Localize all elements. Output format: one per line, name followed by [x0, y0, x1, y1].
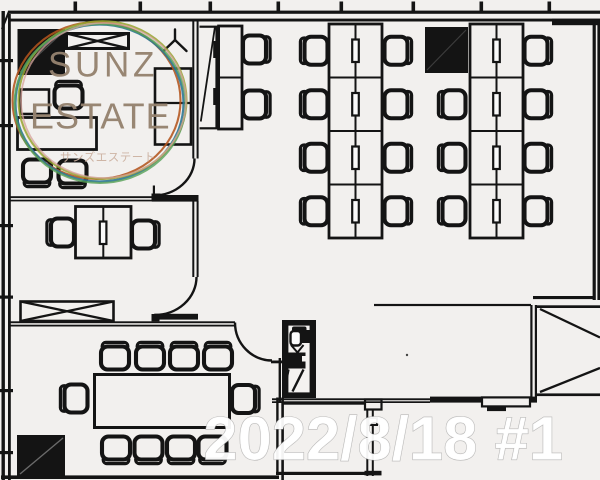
svg-text:SUNZ: SUNZ: [48, 46, 158, 85]
svg-text:サンズエステート: サンズエステート: [60, 150, 156, 164]
svg-text:2022/8/18 #1: 2022/8/18 #1: [204, 405, 564, 473]
svg-text:ESTATE: ESTATE: [30, 96, 171, 137]
